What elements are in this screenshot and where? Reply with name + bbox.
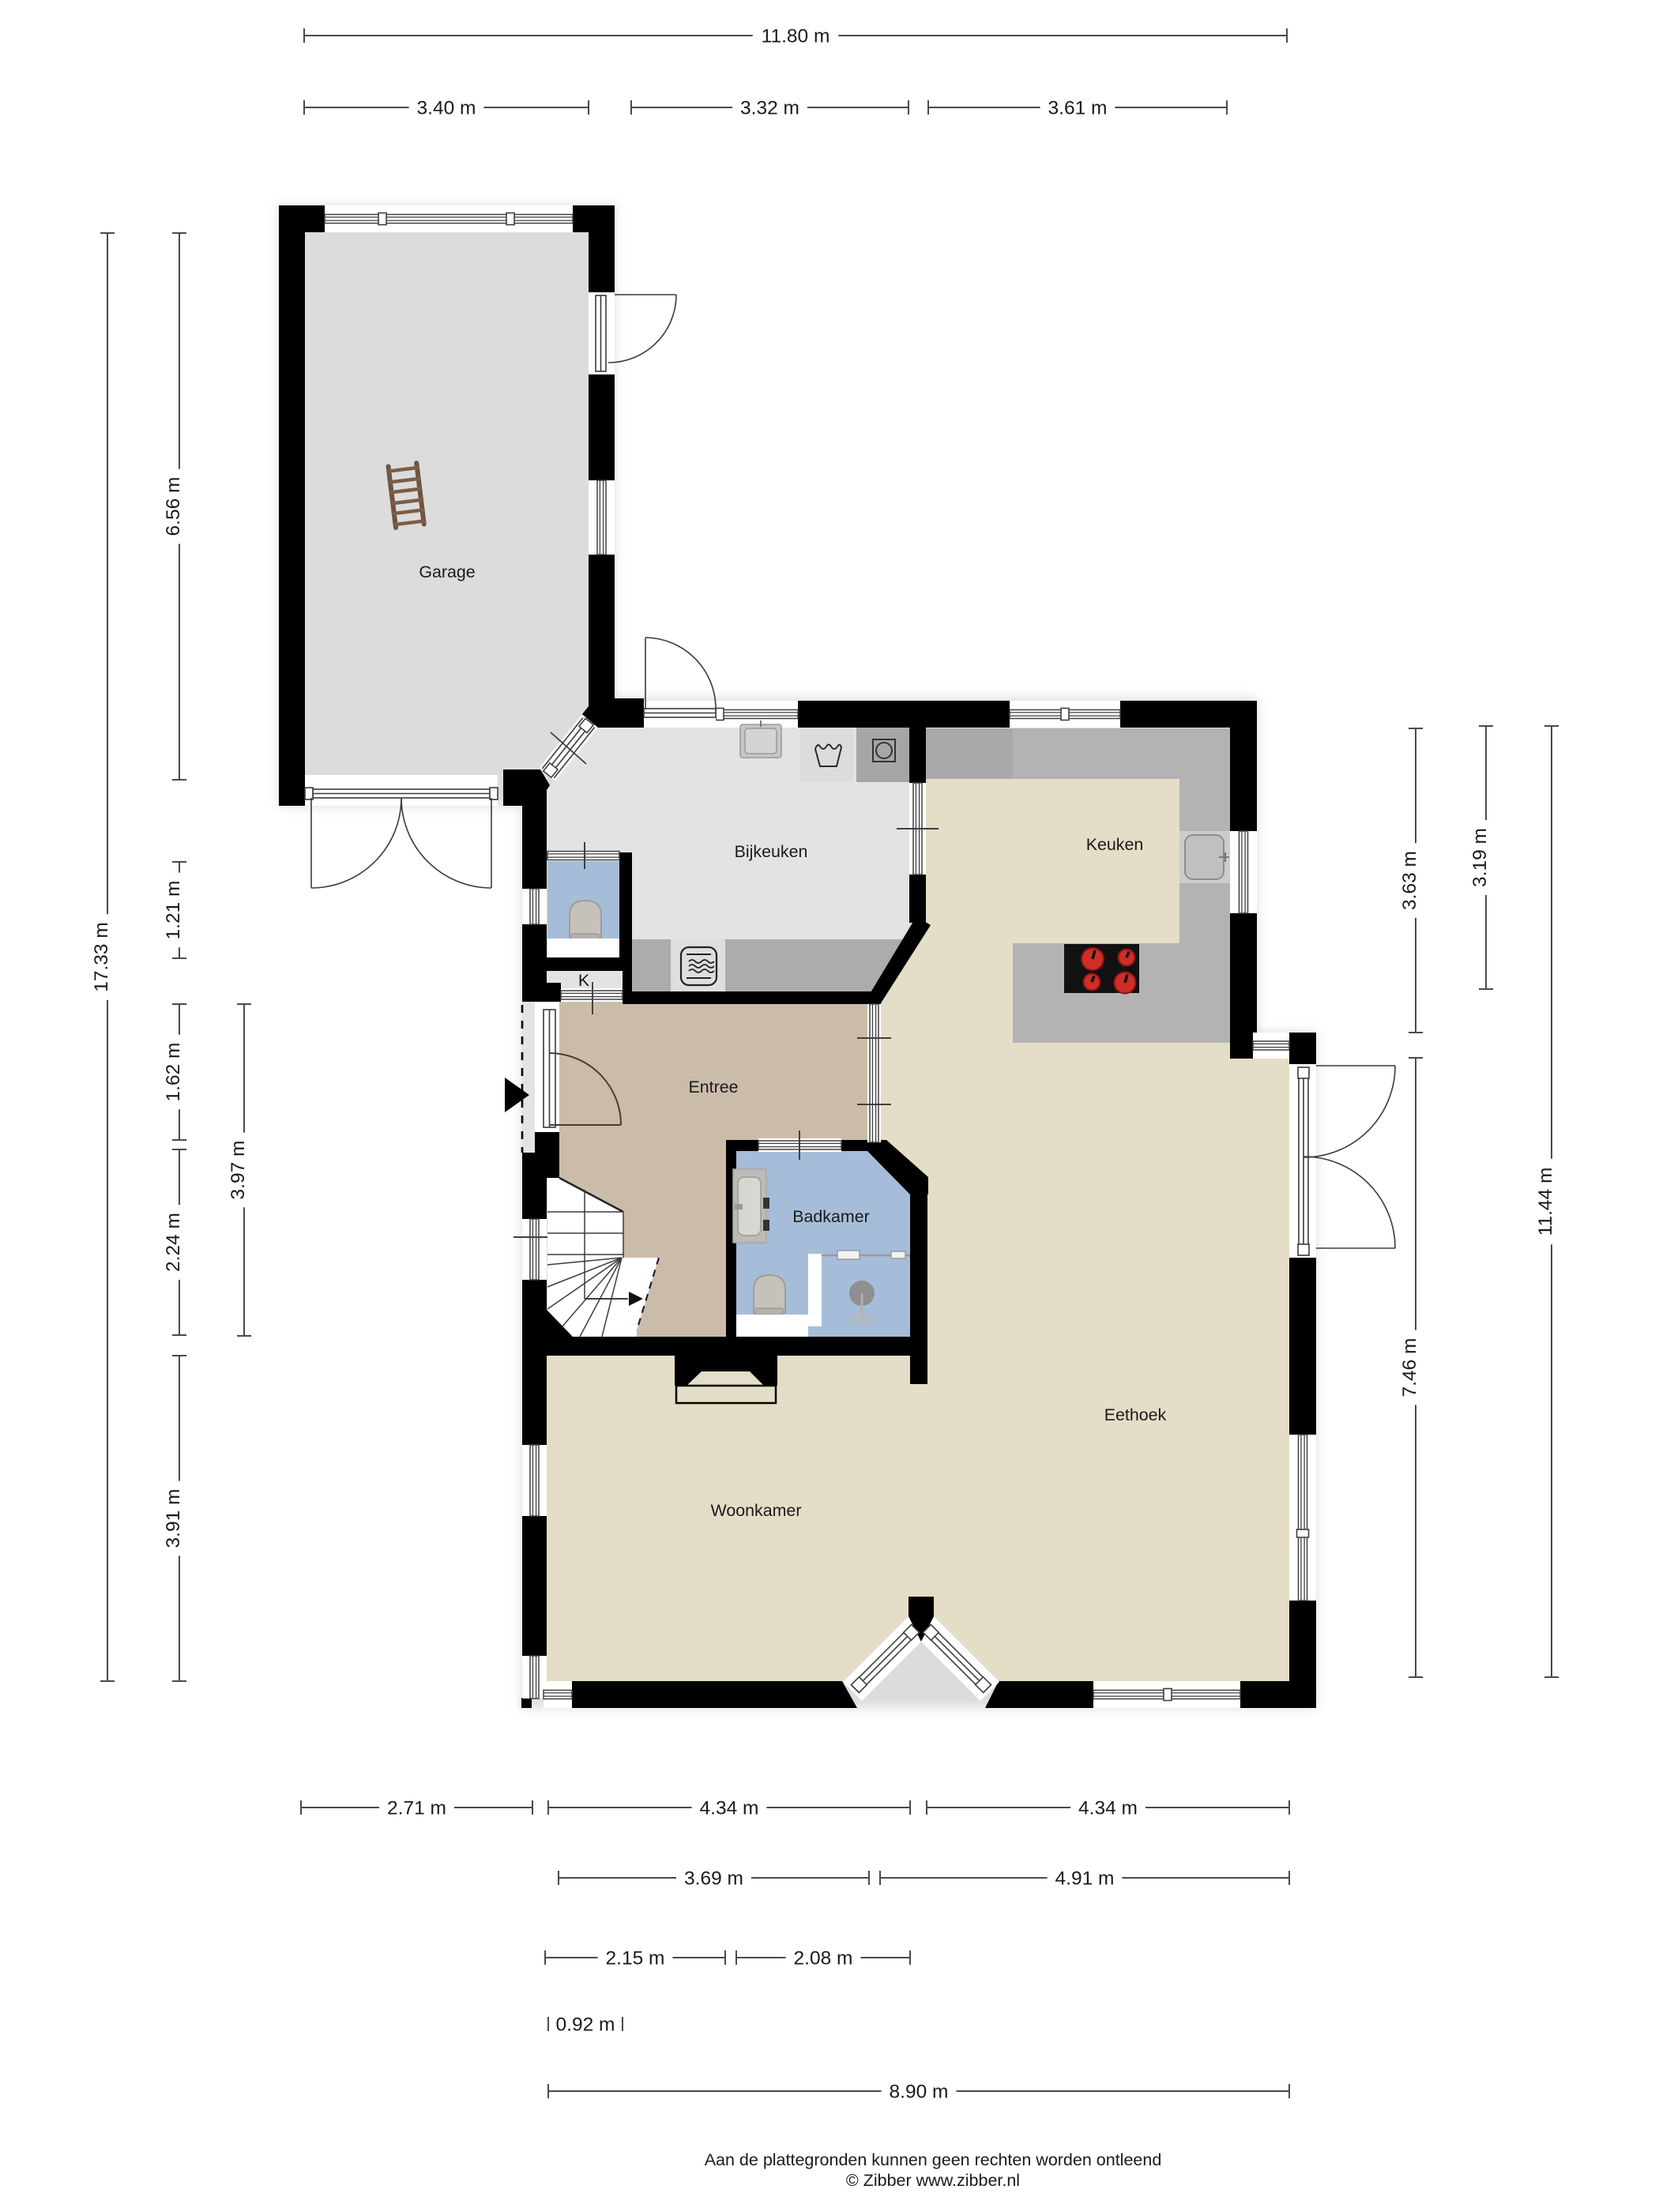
svg-text:4.34 m: 4.34 m bbox=[700, 1798, 759, 1819]
svg-text:11.44 m: 11.44 m bbox=[1535, 1168, 1556, 1236]
svg-text:2.15 m: 2.15 m bbox=[606, 1948, 665, 1969]
svg-text:Aan de plattegronden kunnen ge: Aan de plattegronden kunnen geen rechten… bbox=[705, 2150, 1162, 2169]
svg-text:4.34 m: 4.34 m bbox=[1078, 1798, 1138, 1819]
svg-text:Badkamer: Badkamer bbox=[792, 1207, 870, 1226]
svg-text:3.69 m: 3.69 m bbox=[684, 1868, 743, 1890]
svg-text:© Zibber www.zibber.nl: © Zibber www.zibber.nl bbox=[846, 2171, 1020, 2190]
svg-text:11.80 m: 11.80 m bbox=[762, 26, 830, 47]
svg-text:1.62 m: 1.62 m bbox=[163, 1043, 184, 1102]
svg-text:Garage: Garage bbox=[419, 562, 475, 581]
svg-text:4.91 m: 4.91 m bbox=[1055, 1868, 1115, 1890]
svg-text:Entree: Entree bbox=[688, 1078, 738, 1097]
svg-text:Bijkeuken: Bijkeuken bbox=[735, 842, 808, 861]
svg-text:3.40 m: 3.40 m bbox=[417, 98, 476, 119]
svg-text:2.08 m: 2.08 m bbox=[794, 1948, 853, 1969]
svg-text:3.97 m: 3.97 m bbox=[228, 1141, 249, 1200]
svg-text:3.61 m: 3.61 m bbox=[1048, 98, 1108, 119]
svg-text:1.21 m: 1.21 m bbox=[163, 881, 184, 940]
svg-text:17.33 m: 17.33 m bbox=[91, 922, 112, 992]
svg-text:0.92 m: 0.92 m bbox=[556, 2014, 615, 2036]
svg-text:3.63 m: 3.63 m bbox=[1399, 851, 1420, 910]
svg-text:3.32 m: 3.32 m bbox=[740, 98, 799, 119]
svg-text:Woonkamer: Woonkamer bbox=[711, 1501, 802, 1520]
svg-text:6.56 m: 6.56 m bbox=[163, 477, 184, 536]
svg-text:2.71 m: 2.71 m bbox=[387, 1798, 446, 1819]
svg-text:Keuken: Keuken bbox=[1086, 835, 1144, 854]
svg-text:3.91 m: 3.91 m bbox=[163, 1489, 184, 1548]
svg-text:8.90 m: 8.90 m bbox=[890, 2082, 949, 2103]
svg-text:7.46 m: 7.46 m bbox=[1399, 1338, 1420, 1398]
svg-text:3.19 m: 3.19 m bbox=[1469, 828, 1491, 887]
svg-text:Eethoek: Eethoek bbox=[1104, 1405, 1167, 1424]
svg-text:2.24 m: 2.24 m bbox=[163, 1213, 184, 1272]
svg-text:K: K bbox=[578, 971, 590, 990]
